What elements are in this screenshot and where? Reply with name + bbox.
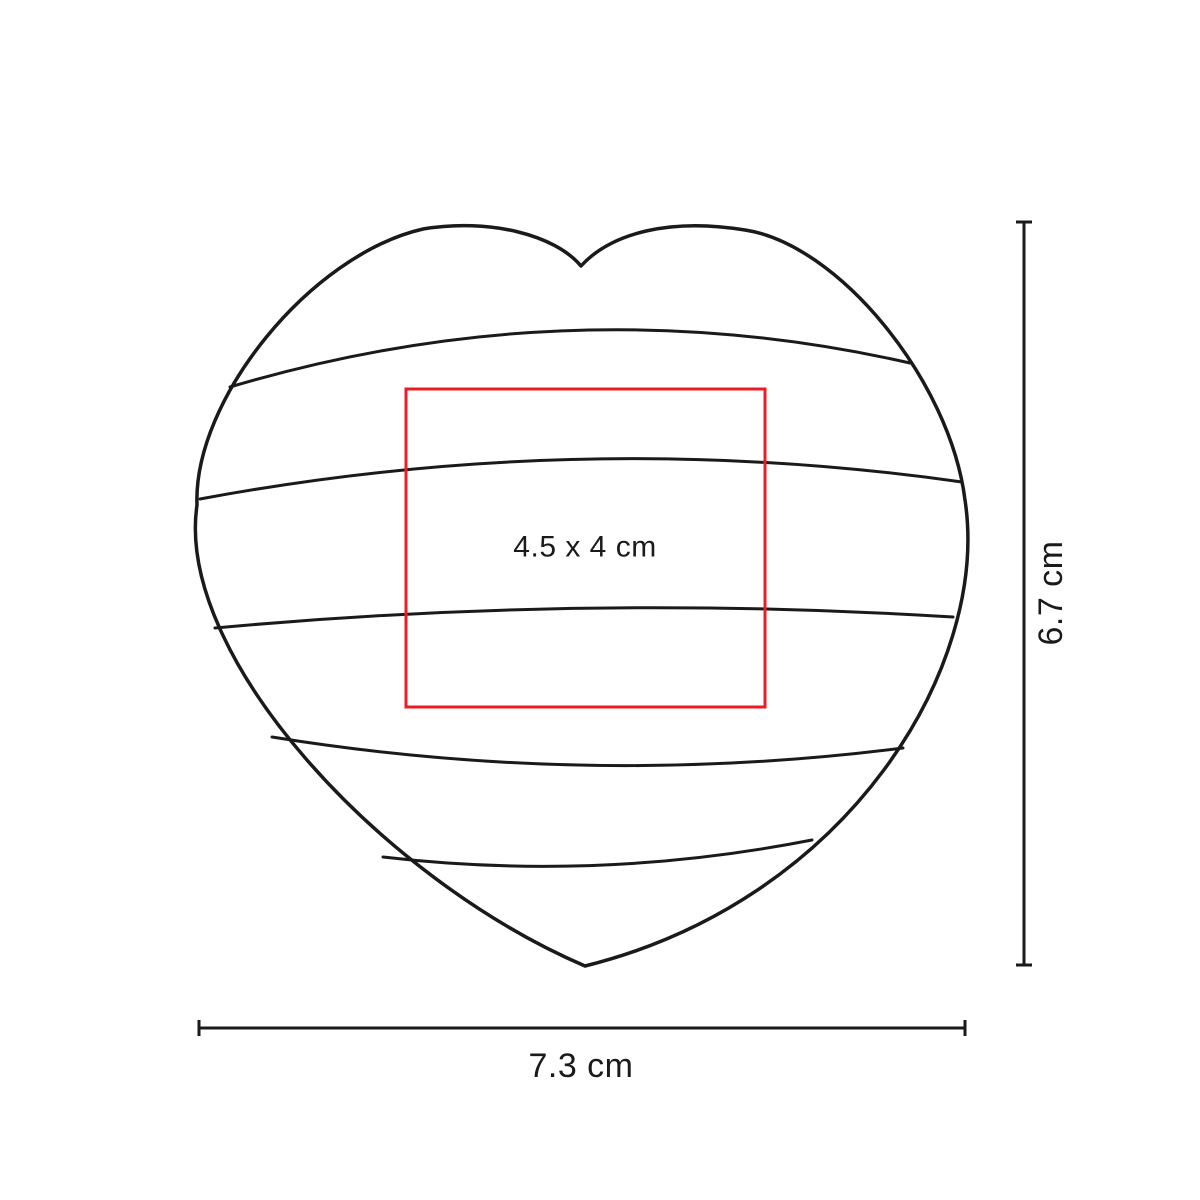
heart-stripe-1 (230, 330, 910, 387)
width-dimension-label: 7.3 cm (528, 1047, 633, 1085)
product-dimension-diagram: 4.5 x 4 cm 6.7 cm 7.3 cm (0, 0, 1200, 1200)
heart-outline (195, 226, 967, 966)
heart-stripe-5 (383, 840, 812, 866)
height-dimension (1016, 222, 1032, 965)
print-area-label: 4.5 x 4 cm (513, 531, 656, 564)
heart-shape-group (195, 226, 967, 966)
heart-stripe-2 (200, 459, 962, 499)
diagram-svg: 4.5 x 4 cm 6.7 cm 7.3 cm (0, 0, 1200, 1200)
height-dimension-label: 6.7 cm (1032, 540, 1070, 645)
width-dimension (199, 1020, 965, 1036)
heart-stripe-4 (272, 737, 903, 766)
heart-stripe-3 (215, 608, 953, 628)
